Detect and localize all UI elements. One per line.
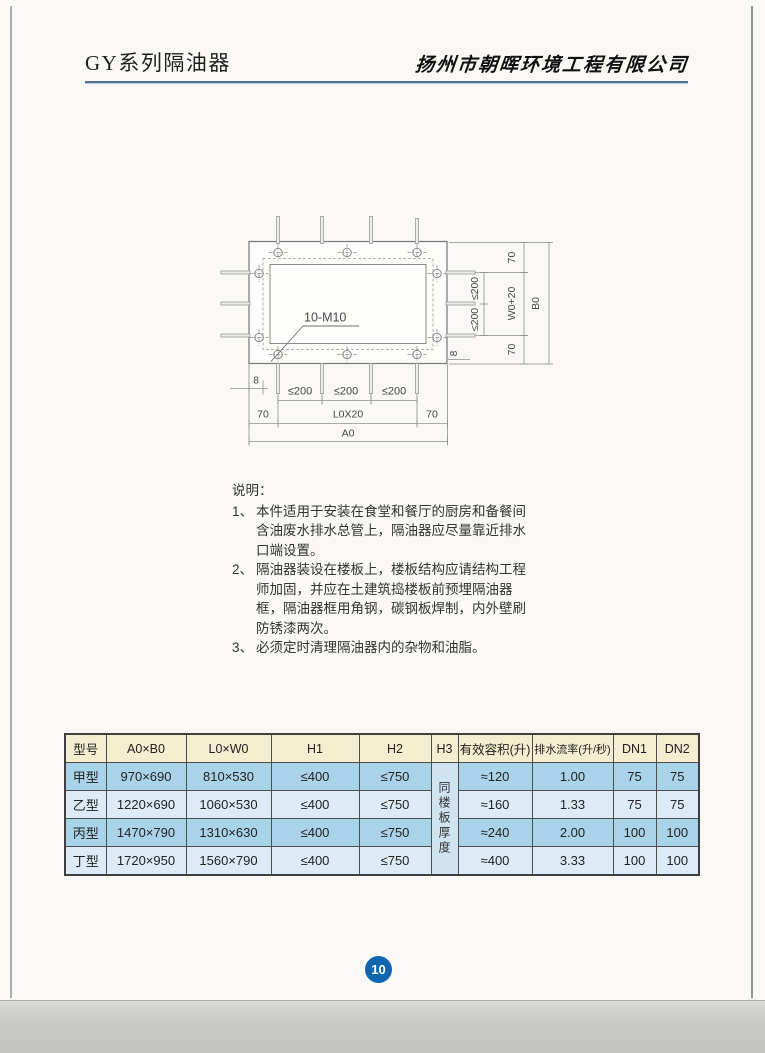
dim-right-seg200-b: ≤200 — [469, 308, 481, 331]
cell-flow: 1.00 — [532, 763, 613, 791]
col-header-model: 型号 — [65, 734, 106, 763]
dim-bottom-right70: 70 — [426, 409, 438, 421]
dim-bottom-left70: 70 — [257, 409, 269, 421]
cell-l0w0: 1060×530 — [186, 791, 271, 819]
table-row: 乙型 1220×690 1060×530 ≤400 ≤750 ≈160 1.33… — [65, 791, 699, 819]
cell-h2: ≤750 — [359, 763, 431, 791]
table-row: 甲型 970×690 810×530 ≤400 ≤750 同楼板厚度 ≈120 … — [65, 763, 699, 791]
table-row: 丙型 1470×790 1310×630 ≤400 ≤750 ≈240 2.00… — [65, 819, 699, 847]
cell-dn1: 100 — [613, 847, 656, 876]
scan-bottom-edge — [0, 1000, 765, 1053]
table-header-row: 型号 A0×B0 L0×W0 H1 H2 H3 有效容积(升) 排水流率(升/秒… — [65, 734, 699, 763]
company-name: 扬州市朝晖环境工程有限公司 — [414, 56, 690, 80]
cell-h1: ≤400 — [271, 791, 359, 819]
dimension-lines-bottom — [230, 364, 448, 446]
cell-flow: 2.00 — [532, 819, 613, 847]
bolt-callout-label: 10-M10 — [304, 311, 346, 325]
page-number-badge: 10 — [365, 956, 392, 983]
anchor-studs-top — [277, 217, 419, 244]
note-number: 3、 — [232, 638, 256, 658]
note-text: 隔油器装设在楼板上，楼板结构应请结构工程师加固，并应在土建筑捣楼板前预埋隔油器框… — [256, 560, 532, 638]
dim-right-b0: B0 — [530, 297, 542, 310]
note-item: 3、 必须定时清理隔油器内的杂物和油脂。 — [232, 638, 532, 658]
note-item: 1、 本件适用于安装在食堂和餐厅的厨房和备餐间含油废水排水总管上，隔油器应尽量靠… — [232, 502, 532, 561]
cell-l0w0: 1560×790 — [186, 847, 271, 876]
table-row: 丁型 1720×950 1560×790 ≤400 ≤750 ≈400 3.33… — [65, 847, 699, 876]
note-text: 必须定时清理隔油器内的杂物和油脂。 — [256, 638, 532, 658]
header-underline — [85, 81, 688, 84]
cell-h2: ≤750 — [359, 847, 431, 876]
cell-h1: ≤400 — [271, 763, 359, 791]
page-header: GY系列隔油器 扬州市朝晖环境工程有限公司 — [85, 44, 688, 80]
note-number: 2、 — [232, 560, 256, 580]
page-title: GY系列隔油器 — [85, 53, 231, 80]
cell-a0b0: 970×690 — [106, 763, 186, 791]
col-header-h3: H3 — [431, 734, 458, 763]
frame-opening-rect — [270, 265, 426, 344]
col-header-h1: H1 — [271, 734, 359, 763]
dim-bottom-seg200-c: ≤200 — [382, 386, 406, 398]
notes-section: 说明： 1、 本件适用于安装在食堂和餐厅的厨房和备餐间含油废水排水总管上，隔油器… — [232, 481, 532, 658]
cell-a0b0: 1470×790 — [106, 819, 186, 847]
cell-dn2: 100 — [656, 847, 699, 876]
note-text: 本件适用于安装在食堂和餐厅的厨房和备餐间含油废水排水总管上，隔油器应尽量靠近排水… — [256, 502, 532, 561]
col-header-h2: H2 — [359, 734, 431, 763]
anchor-studs-left — [221, 271, 250, 337]
notes-title: 说明： — [232, 481, 532, 501]
cell-volume: ≈160 — [458, 791, 532, 819]
cell-h1: ≤400 — [271, 819, 359, 847]
cell-model: 乙型 — [65, 791, 106, 819]
cell-h2: ≤750 — [359, 819, 431, 847]
cell-dn1: 75 — [613, 791, 656, 819]
cell-volume: ≈240 — [458, 819, 532, 847]
col-header-l0w0: L0×W0 — [186, 734, 271, 763]
dim-bottom-seg200-a: ≤200 — [288, 386, 312, 398]
cell-model: 甲型 — [65, 763, 106, 791]
spec-table: 型号 A0×B0 L0×W0 H1 H2 H3 有效容积(升) 排水流率(升/秒… — [64, 733, 700, 876]
cell-model: 丁型 — [65, 847, 106, 876]
scan-right-edge — [751, 6, 753, 998]
cell-dn2: 100 — [656, 819, 699, 847]
dim-right-w0: W0+20 — [506, 287, 518, 321]
cell-a0b0: 1720×950 — [106, 847, 186, 876]
oil-separator-frame-drawing: 10-M10 ≤200 ≤200 70 W0+20 70 B0 8 — [205, 195, 555, 460]
dim-right-bottom70: 70 — [506, 344, 518, 356]
cell-a0b0: 1220×690 — [106, 791, 186, 819]
col-header-dn2: DN2 — [656, 734, 699, 763]
cell-volume: ≈120 — [458, 763, 532, 791]
col-header-flow: 排水流率(升/秒) — [532, 734, 613, 763]
col-header-dn1: DN1 — [613, 734, 656, 763]
note-item: 2、 隔油器装设在楼板上，楼板结构应请结构工程师加固，并应在土建筑捣楼板前预埋隔… — [232, 560, 532, 638]
cell-flow: 1.33 — [532, 791, 613, 819]
cell-h3-spanning: 同楼板厚度 — [431, 763, 458, 876]
cell-flow: 3.33 — [532, 847, 613, 876]
note-number: 1、 — [232, 502, 256, 522]
scan-left-edge — [10, 6, 12, 998]
cell-l0w0: 810×530 — [186, 763, 271, 791]
dim-right-seg200-a: ≤200 — [469, 277, 481, 300]
cell-model: 丙型 — [65, 819, 106, 847]
cell-volume: ≈400 — [458, 847, 532, 876]
cell-h2: ≤750 — [359, 791, 431, 819]
cell-dn2: 75 — [656, 763, 699, 791]
cell-dn2: 75 — [656, 791, 699, 819]
cell-dn1: 100 — [613, 819, 656, 847]
cell-h1: ≤400 — [271, 847, 359, 876]
col-header-volume: 有效容积(升) — [458, 734, 532, 763]
dim-right-top70: 70 — [506, 252, 518, 264]
dim-right-gap8: 8 — [449, 350, 460, 356]
col-header-a0b0: A0×B0 — [106, 734, 186, 763]
dim-bottom-gap8: 8 — [253, 376, 259, 387]
page-number: 10 — [371, 962, 385, 977]
dim-bottom-a0: A0 — [342, 428, 355, 440]
dim-bottom-l0x20: L0X20 — [333, 409, 364, 421]
cell-dn1: 75 — [613, 763, 656, 791]
cell-l0w0: 1310×630 — [186, 819, 271, 847]
dim-bottom-seg200-b: ≤200 — [334, 386, 358, 398]
